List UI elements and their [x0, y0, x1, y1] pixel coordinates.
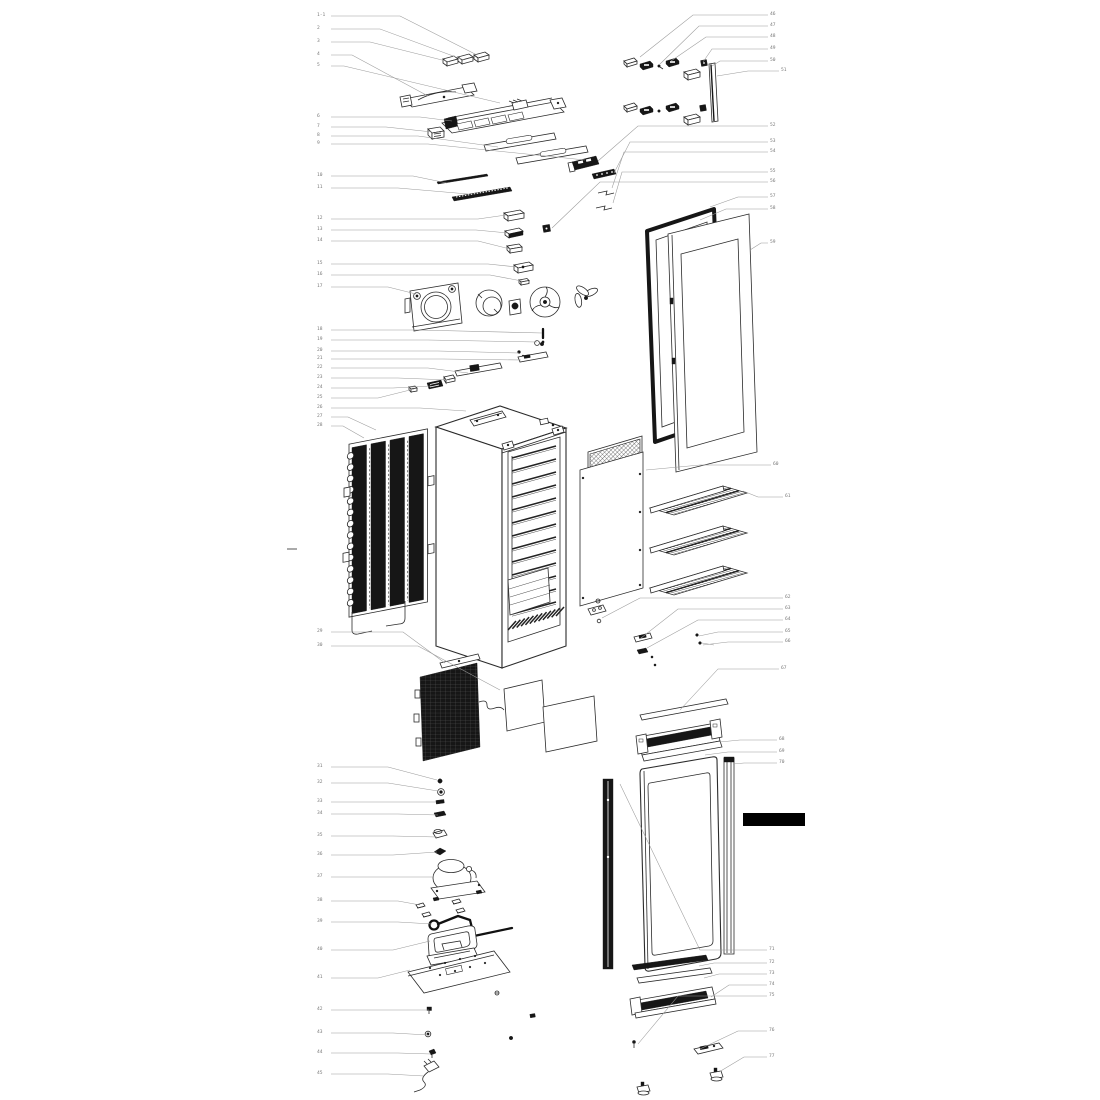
callout-number: 3 — [317, 38, 320, 44]
leveling-foot-right — [710, 1068, 723, 1081]
callout-17: 17 — [317, 283, 416, 294]
callout-number: 50 — [770, 57, 776, 63]
callout-number: 6 — [317, 113, 320, 119]
callout-number: 59 — [770, 239, 776, 245]
callout-number: 46 — [770, 11, 776, 17]
callout-number: 74 — [769, 981, 775, 987]
callout-55: 55 — [613, 168, 776, 203]
callout-number: 15 — [317, 260, 323, 266]
callout-number: 4 — [317, 51, 320, 57]
callout-27: 27 — [317, 413, 376, 430]
callout-number: 11 — [317, 184, 323, 190]
callout-51: 51 — [717, 67, 787, 76]
callout-20: 20 — [317, 347, 519, 353]
callout-number: 2 — [317, 25, 320, 31]
callout-67: 67 — [680, 665, 787, 710]
callout-number: 13 — [317, 226, 323, 232]
callout-number: 70 — [779, 759, 785, 765]
callout-66: 66 — [703, 638, 791, 645]
callout-69: 69 — [705, 748, 785, 755]
callout-31: 31 — [317, 763, 437, 780]
callout-53: 53 — [614, 138, 776, 173]
callout-number: 28 — [317, 422, 323, 428]
callout-41: 41 — [317, 970, 410, 980]
callout-number: 27 — [317, 413, 323, 419]
door-screw — [632, 1040, 635, 1048]
divider-panel-1 — [504, 680, 545, 731]
callout-number: 76 — [769, 1027, 775, 1033]
callout-48: 48 — [671, 33, 776, 61]
control-board-main — [442, 98, 566, 133]
callout-44: 44 — [317, 1049, 431, 1055]
callout-number: 52 — [770, 122, 776, 128]
callout-32: 32 — [317, 779, 438, 791]
callout-number: 36 — [317, 851, 323, 857]
thermostat-housing — [504, 210, 551, 285]
callout-13: 13 — [317, 226, 508, 233]
callout-6: 6 — [317, 113, 452, 121]
callout-34: 34 — [317, 810, 438, 816]
divider-panel-2 — [543, 696, 597, 752]
control-strip — [592, 169, 616, 179]
callout-number: 1-1 — [317, 12, 326, 18]
callout-number: 49 — [770, 45, 776, 51]
callout-12: 12 — [317, 215, 506, 221]
compressor-unit — [431, 860, 485, 902]
evaporator-panel — [343, 428, 434, 635]
callout-number: 24 — [317, 384, 323, 390]
callout-15: 15 — [317, 260, 517, 267]
callout-number: 66 — [785, 638, 791, 644]
callout-33: 33 — [317, 798, 436, 804]
callout-number: 58 — [770, 205, 776, 211]
callout-number: 8 — [317, 132, 320, 138]
callout-number: 61 — [785, 493, 791, 499]
callout-number: 71 — [769, 946, 775, 952]
callout-52: 52 — [598, 122, 776, 161]
callout-50: 50 — [712, 57, 776, 66]
callout-number: 19 — [317, 336, 323, 342]
callout-36: 36 — [317, 851, 437, 857]
callout-number: 34 — [317, 810, 323, 816]
callout-number: 23 — [317, 374, 323, 380]
callout-number: 16 — [317, 271, 323, 277]
callout-73: 73 — [704, 970, 775, 978]
callout-number: 17 — [317, 283, 323, 289]
callout-70: 70 — [733, 759, 785, 765]
callout-14: 14 — [317, 237, 510, 249]
callout-10: 10 — [317, 172, 447, 183]
callout-number: 37 — [317, 873, 323, 879]
leveling-foot-left — [637, 1082, 650, 1095]
callout-43: 43 — [317, 1029, 428, 1035]
hinge-bracket-bottom — [694, 1043, 723, 1054]
callout-number: 47 — [770, 22, 776, 28]
callout-number: 21 — [317, 355, 323, 361]
fasteners-row — [409, 329, 548, 392]
callout-number: 33 — [317, 798, 323, 804]
callout-number: 51 — [781, 67, 787, 73]
callout-number: 62 — [785, 594, 791, 600]
callout-26: 26 — [317, 404, 466, 411]
wire-shelf — [650, 526, 747, 555]
base-fasteners — [425, 991, 535, 1058]
cap-buttons — [443, 52, 489, 66]
callout-number: 63 — [785, 605, 791, 611]
callout-number: 5 — [317, 62, 320, 68]
callout-3: 3 — [317, 38, 450, 62]
callout-number: 20 — [317, 347, 323, 353]
redaction-bar — [743, 813, 805, 826]
callout-number: 54 — [770, 148, 776, 154]
callout-number: 57 — [770, 193, 776, 199]
callout-number: 64 — [785, 616, 791, 622]
callout-number: 72 — [769, 959, 775, 965]
door-top-trim — [640, 699, 728, 720]
callout-68: 68 — [720, 736, 785, 742]
compressor-parts-column — [433, 779, 447, 855]
condenser-coil — [414, 654, 504, 761]
callout-8: 8 — [317, 132, 498, 147]
small-bracket — [428, 127, 444, 139]
callout-25: 25 — [317, 389, 414, 400]
trim-panel-1 — [484, 133, 556, 151]
callout-77: 77 — [719, 1053, 775, 1072]
compressor-mounts — [416, 899, 465, 917]
callout-number: 26 — [317, 404, 323, 410]
callout-38: 38 — [317, 897, 420, 905]
callout-number: 39 — [317, 918, 323, 924]
callout-number: 55 — [770, 168, 776, 174]
wire-shelf — [650, 566, 747, 595]
fan-propeller — [574, 284, 599, 308]
callout-number: 22 — [317, 364, 323, 370]
callout-number: 67 — [781, 665, 787, 671]
callout-number: 18 — [317, 326, 323, 332]
callout-4: 4 — [317, 51, 428, 96]
diagram-canvas: 1-12345678910111213141516171819202122232… — [0, 0, 1100, 1100]
callout-21: 21 — [317, 355, 521, 361]
callout-42: 42 — [317, 1006, 429, 1012]
callout-11: 11 — [317, 184, 468, 194]
callout-number: 45 — [317, 1070, 323, 1076]
callout-23: 23 — [317, 374, 450, 380]
side-rail-strip-top — [709, 63, 718, 122]
callout-number: 40 — [317, 946, 323, 952]
door-right-rail — [724, 757, 734, 954]
callout-59: 59 — [750, 239, 776, 250]
callout-number: 69 — [779, 748, 785, 754]
callout-57: 57 — [710, 193, 776, 207]
callout-number: 10 — [317, 172, 323, 178]
callout-62: 62 — [602, 594, 791, 618]
callout-number: 77 — [769, 1053, 775, 1059]
callout-35: 35 — [317, 832, 437, 838]
back-panel — [580, 436, 643, 606]
callout-37: 37 — [317, 873, 434, 879]
callout-number: 12 — [317, 215, 323, 221]
callout-number: 7 — [317, 123, 320, 129]
callout-number: 48 — [770, 33, 776, 39]
callout-number: 73 — [769, 970, 775, 976]
hinge-caps-top — [624, 58, 707, 125]
callout-number: 68 — [779, 736, 785, 742]
callout-number: 60 — [773, 461, 779, 467]
callout-number: 43 — [317, 1029, 323, 1035]
callout-number: 41 — [317, 974, 323, 980]
callout-40: 40 — [317, 941, 430, 952]
callout-65: 65 — [699, 628, 791, 636]
callout-number: 31 — [317, 763, 323, 769]
callout-74: 74 — [711, 981, 775, 997]
callout-number: 14 — [317, 237, 323, 243]
callout-16: 16 — [317, 271, 522, 281]
callout-49: 49 — [703, 45, 776, 62]
callout-number: 75 — [769, 992, 775, 998]
callout-number: 65 — [785, 628, 791, 634]
cabinet-body — [436, 406, 566, 668]
door-frame — [668, 214, 757, 472]
callout-39: 39 — [317, 918, 432, 924]
wire-shelf — [650, 486, 747, 515]
door-left-rail — [603, 779, 613, 969]
callout-63: 63 — [641, 605, 791, 638]
callout-number: 53 — [770, 138, 776, 144]
callout-29: 29 — [317, 628, 445, 663]
callout-number: 35 — [317, 832, 323, 838]
striped-strip — [452, 187, 512, 201]
exploded-parts-diagram: 1-12345678910111213141516171819202122232… — [0, 0, 1100, 1100]
wire-shelves — [650, 486, 747, 595]
display-unit — [568, 156, 599, 172]
callout-number: 29 — [317, 628, 323, 634]
glass-door — [640, 757, 721, 971]
callout-61: 61 — [743, 491, 791, 499]
sensor-wires — [596, 191, 614, 210]
callout-19: 19 — [317, 336, 537, 342]
callout-number: 25 — [317, 394, 323, 400]
door-bottom-rail — [630, 987, 716, 1018]
callout-number: 9 — [317, 140, 320, 146]
callout-number: 38 — [317, 897, 323, 903]
callout-28: 28 — [317, 422, 364, 438]
callout-number: 32 — [317, 779, 323, 785]
callout-45: 45 — [317, 1070, 424, 1076]
callout-number: 30 — [317, 642, 323, 648]
evaporator-fan-assembly — [405, 283, 599, 331]
callout-number: 44 — [317, 1049, 323, 1055]
callout-7: 7 — [317, 123, 432, 132]
callout-number: 56 — [770, 178, 776, 184]
callout-46: 46 — [640, 11, 776, 57]
callout-22: 22 — [317, 364, 468, 373]
callout-number: 42 — [317, 1006, 323, 1012]
